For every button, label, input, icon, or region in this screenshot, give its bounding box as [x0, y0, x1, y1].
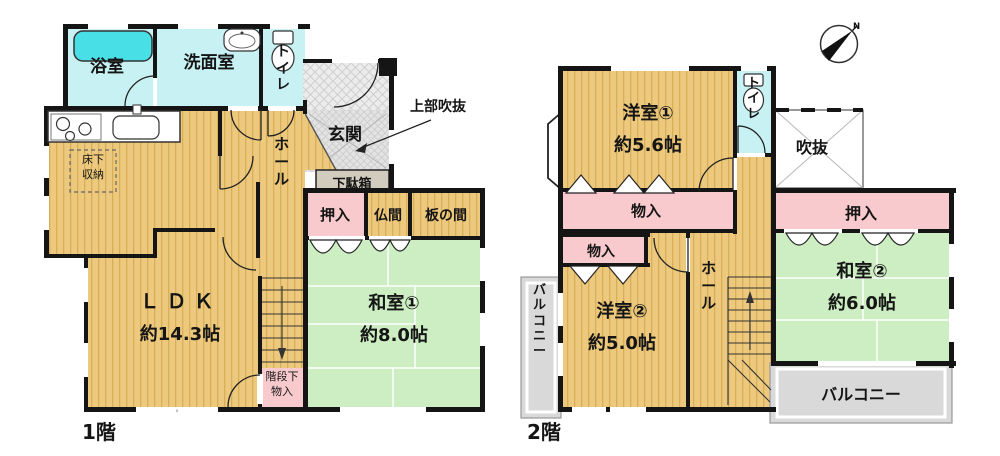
- washitsu1-label: 和室① 約8.0帖: [360, 288, 428, 351]
- kitchen-counter-icon: [48, 105, 180, 142]
- stair-storage-label: 階段下物入: [263, 370, 300, 400]
- floor2-title: 2階: [527, 416, 561, 445]
- floorplan-canvas: N 浴室 洗面室 トイレ ホール 玄関 上部吹抜 下駄箱 床下収納 押入 仏間 …: [0, 0, 1000, 456]
- yoshitsu2-label: 洋室② 約5.0帖: [588, 296, 656, 359]
- hall2-floor: [690, 231, 773, 407]
- ldk-label: ＬＤＫ 約14.3帖: [140, 284, 221, 351]
- balcony-left-label: バルコニー: [532, 283, 547, 360]
- washitsu2-label: 和室② 約6.0帖: [828, 256, 896, 319]
- faucet-icon: [133, 105, 141, 114]
- yoshitsu2-name: 洋室②: [588, 296, 656, 328]
- washroom-label: 洗面室: [184, 48, 235, 73]
- yoshitsu2-size: 約5.0帖: [588, 328, 656, 360]
- hall2-label: ホール: [700, 260, 717, 313]
- yoshitsu1-size: 約5.6帖: [614, 130, 682, 162]
- genkan-void-note: 上部吹抜: [410, 96, 466, 116]
- genkan-label: 玄関: [328, 120, 362, 145]
- toilet2-label: トイレ: [746, 76, 761, 122]
- sink-icon: [113, 116, 159, 139]
- stove-burner-icon: [66, 132, 75, 141]
- monoiri-small-label: 物入: [587, 241, 615, 261]
- compass-north-label: N: [853, 22, 860, 32]
- floor1-title: 1階: [82, 416, 116, 445]
- oshiire2-label: 押入: [845, 200, 877, 224]
- washitsu1-size: 約8.0帖: [360, 320, 428, 352]
- itanoma-label: 板の間: [425, 205, 467, 225]
- balcony-right-label: バルコニー: [821, 381, 901, 405]
- butsuma-label: 仏間: [374, 205, 402, 225]
- ldk-size: 約14.3帖: [140, 319, 221, 351]
- toilet1-label: トイレ: [275, 44, 291, 94]
- oshiire1-label: 押入: [320, 204, 350, 225]
- underfloor-storage-label: 床下収納: [79, 153, 108, 183]
- yoshitsu1-name: 洋室①: [614, 98, 682, 130]
- floor1-rooms: [46, 24, 482, 409]
- ldk-name: ＬＤＫ: [140, 284, 221, 319]
- stove-burner-icon: [57, 118, 70, 131]
- hall1-label: ホール: [273, 136, 290, 189]
- compass: N: [821, 22, 861, 63]
- washitsu1-name: 和室①: [360, 288, 428, 320]
- void-label: 吹抜: [796, 134, 828, 158]
- yoshitsu1-label: 洋室① 約5.6帖: [614, 98, 682, 161]
- bath-label: 浴室: [90, 52, 124, 77]
- washitsu2-name: 和室②: [828, 256, 896, 288]
- porch-pillar: [379, 58, 397, 76]
- hall1-lower-floor: [256, 188, 305, 278]
- shoe-cabinet-label: 下駄箱: [332, 173, 371, 192]
- monoiri-big-label: 物入: [631, 200, 661, 221]
- washitsu2-size: 約6.0帖: [828, 288, 896, 320]
- stove-burner-icon: [79, 123, 91, 135]
